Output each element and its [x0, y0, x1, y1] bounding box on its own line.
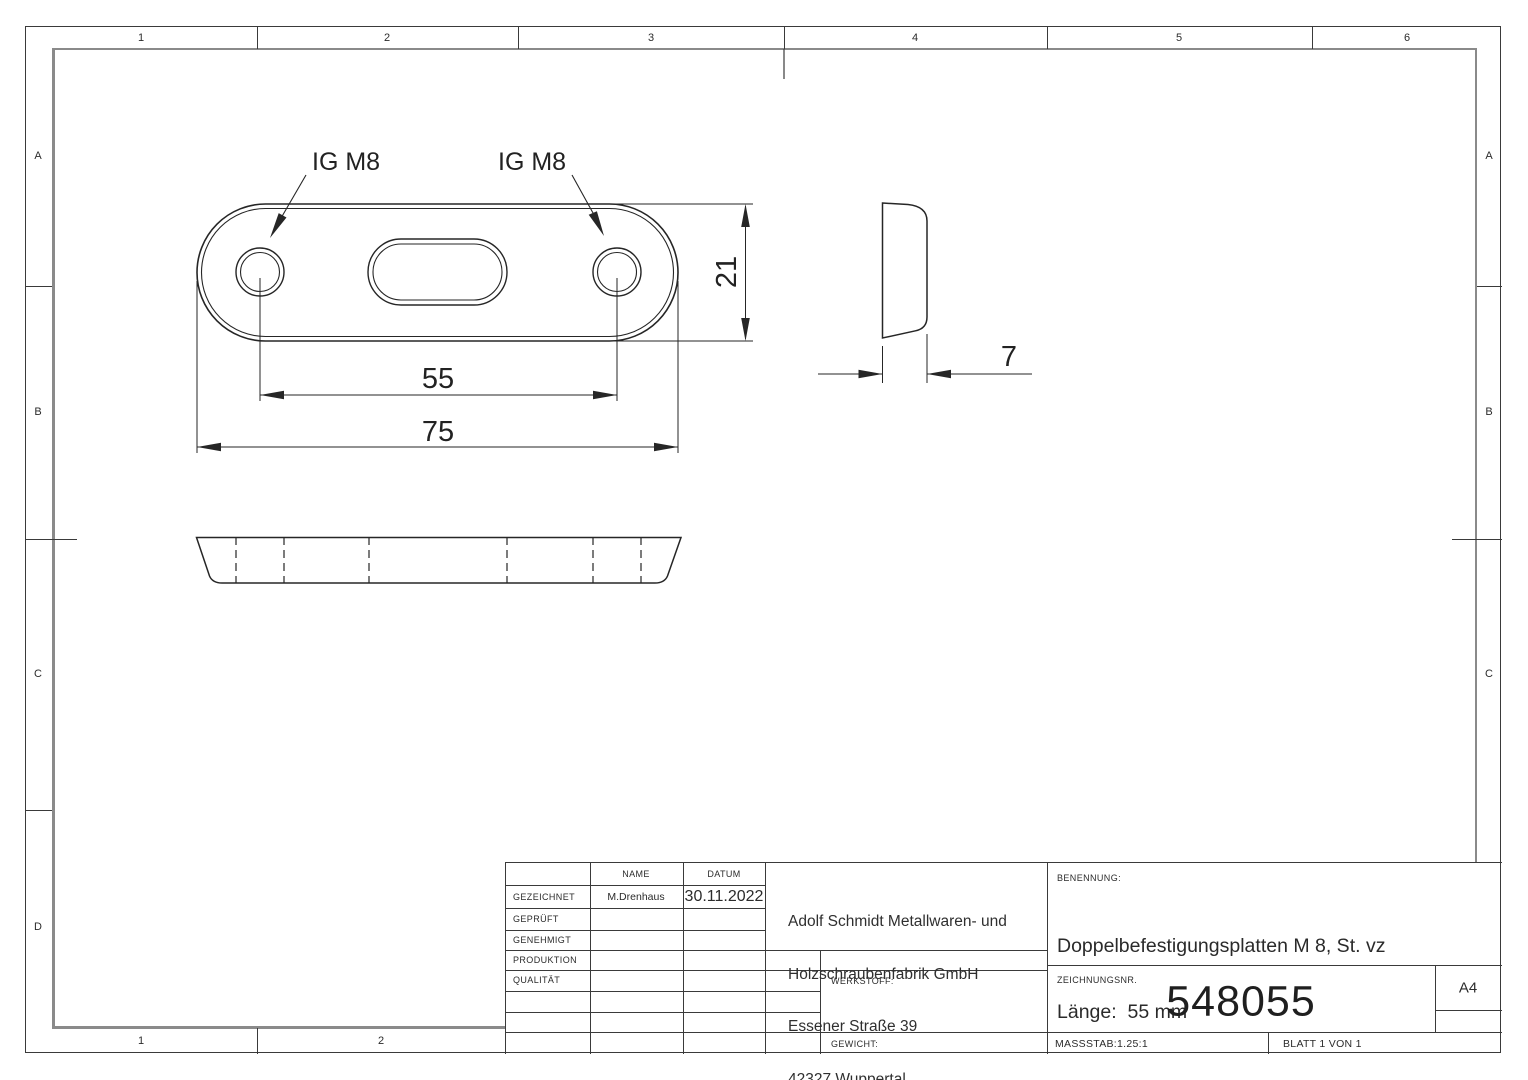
row-label-genehmigt: GENEHMIGT — [513, 935, 571, 945]
gewicht-label: GEWICHT: — [831, 1039, 878, 1049]
thread-callout-right: IG M8 — [498, 148, 566, 176]
dim-arrowhead — [654, 443, 678, 452]
dim-arrowhead — [741, 318, 750, 341]
col-header-name: NAME — [622, 869, 650, 879]
bottom-profile-outline — [197, 538, 682, 584]
bottom-view — [197, 537, 682, 583]
company-line: Holzschraubenfabrik GmbH — [788, 966, 1007, 984]
titleblock-line — [590, 862, 591, 1054]
titleblock-line — [505, 862, 1502, 863]
part-title-line1: Doppelbefestigungsplatten M 8, St. vz — [1057, 935, 1385, 957]
dim-arrowhead — [593, 391, 617, 400]
thread-callout-left: IG M8 — [312, 148, 380, 176]
dim-arrowhead — [927, 370, 951, 378]
scale-label: MASSSTAB:1.25:1 — [1055, 1038, 1148, 1050]
top-view — [197, 175, 678, 341]
dim-arrowhead — [859, 370, 883, 378]
row-label-produktion: PRODUKTION — [513, 955, 577, 965]
titleblock-line — [505, 1012, 820, 1013]
titleblock-line — [1047, 862, 1048, 1054]
dim-text-thickness: 7 — [1001, 341, 1017, 373]
titleblock-line — [505, 930, 765, 931]
row-label-gezeichnet: GEZEICHNET — [513, 892, 575, 902]
dim-text-hole-spacing: 55 — [422, 363, 454, 395]
company-line: 42327 Wuppertal — [788, 1071, 1007, 1080]
zeichnungsnr-label: ZEICHNUNGSNR. — [1057, 975, 1137, 985]
drawing-sheet: 1 2 3 4 5 6 1 2 A B C D A B C IG — [0, 0, 1528, 1080]
slot-inner-edge — [373, 244, 502, 300]
dim-arrowhead — [197, 443, 221, 452]
slot-outline — [368, 239, 507, 305]
dim-text-plate-height: 21 — [711, 256, 743, 288]
titleblock-line — [505, 991, 820, 992]
row-label-qualitaet: QUALITÄT — [513, 975, 560, 985]
paper-format: A4 — [1459, 980, 1477, 997]
dim-arrowhead — [741, 204, 750, 227]
titleblock-line — [505, 885, 765, 886]
row-label-geprueft: GEPRÜFT — [513, 914, 559, 924]
titleblock-line — [505, 862, 506, 1054]
titleblock-line — [505, 908, 765, 909]
plate-inner-edge — [202, 209, 674, 337]
company-line: Essener Straße 39 — [788, 1018, 1007, 1036]
dim-arrowhead — [260, 391, 284, 400]
side-profile-outline — [883, 203, 928, 338]
company-line: Adolf Schmidt Metallwaren- und — [788, 913, 1007, 931]
sheet-label: BLATT 1 VON 1 — [1283, 1038, 1362, 1050]
company-address: Adolf Schmidt Metallwaren- und Holzschra… — [788, 878, 1007, 1080]
leader-arrowhead — [270, 213, 287, 238]
drawing-number: 548055 — [1166, 978, 1316, 1027]
titleblock-line — [1435, 1010, 1502, 1011]
benennung-label: BENENNUNG: — [1057, 873, 1121, 883]
drawn-date: 30.11.2022 — [685, 888, 764, 906]
drawn-by-name: M.Drenhaus — [607, 891, 664, 903]
dim-text-total-width: 75 — [422, 416, 454, 448]
titleblock-line — [1435, 965, 1436, 1032]
titleblock-line — [765, 862, 766, 1054]
col-header-date: DATUM — [707, 869, 740, 879]
leader-arrowhead — [589, 211, 604, 236]
side-view — [818, 203, 1032, 383]
werkstoff-label: WERKSTOFF: — [831, 976, 894, 986]
plate-outline — [197, 204, 678, 341]
